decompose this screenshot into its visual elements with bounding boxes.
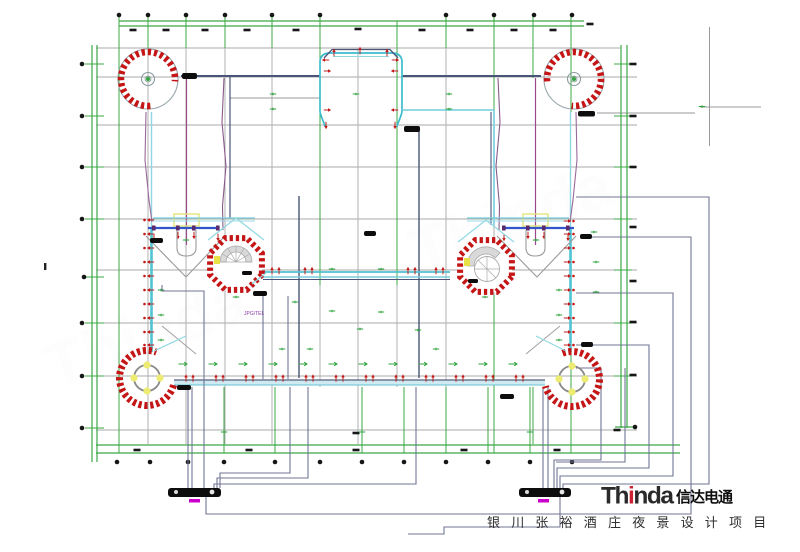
- svg-text:信达电通: 信达电通: [676, 488, 733, 506]
- svg-text:Thinda: Thinda: [601, 483, 674, 510]
- svg-text:JPG/TEL: JPG/TEL: [244, 311, 265, 317]
- svg-text:银川张裕酒庄夜景设计项目: 银川张裕酒庄夜景设计项目: [487, 515, 777, 530]
